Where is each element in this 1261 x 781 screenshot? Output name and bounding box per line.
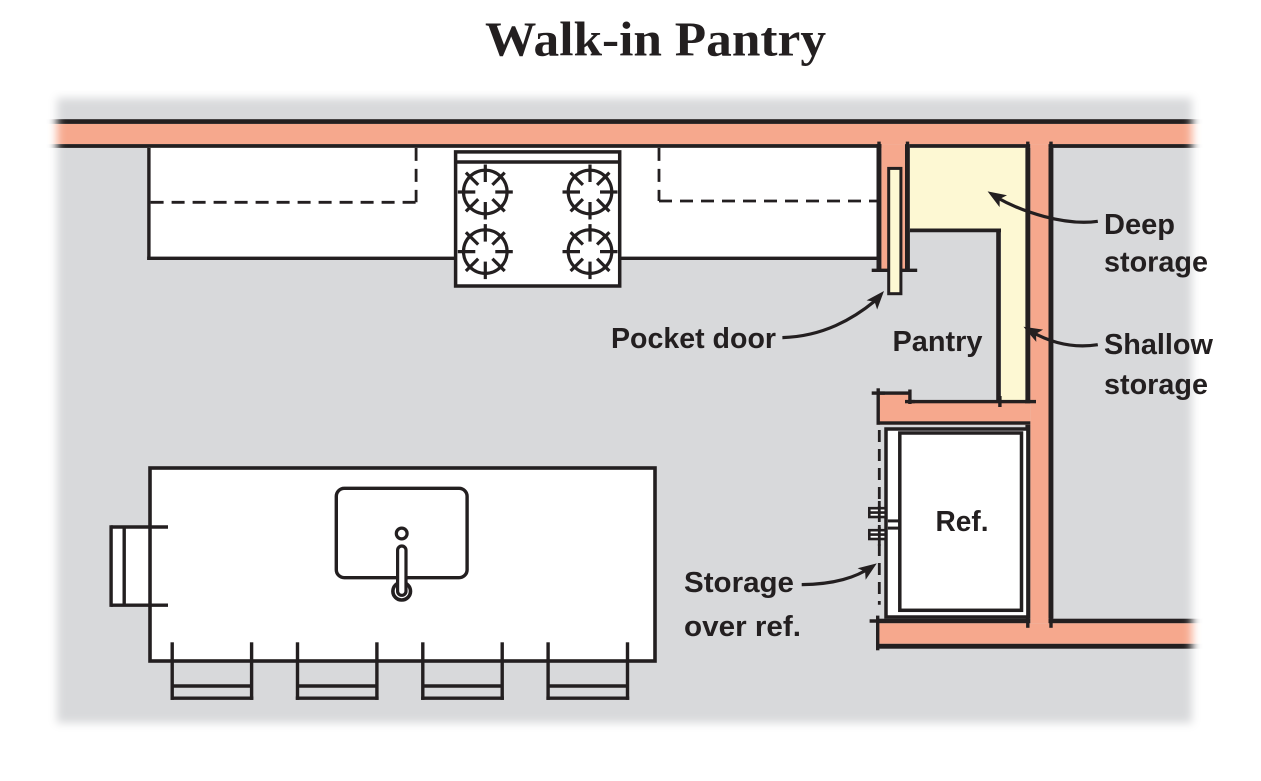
svg-text:Deep: Deep: [1104, 209, 1175, 241]
svg-text:storage: storage: [1104, 247, 1208, 279]
svg-text:Pantry: Pantry: [893, 326, 983, 358]
svg-text:Ref.: Ref.: [936, 506, 989, 538]
svg-text:Walk-in Pantry: Walk-in Pantry: [485, 12, 827, 67]
svg-text:Storage: Storage: [684, 567, 794, 599]
svg-text:storage: storage: [1104, 369, 1208, 401]
svg-text:Shallow: Shallow: [1104, 329, 1213, 361]
svg-text:Pocket door: Pocket door: [611, 323, 776, 355]
svg-text:over ref.: over ref.: [684, 611, 801, 643]
